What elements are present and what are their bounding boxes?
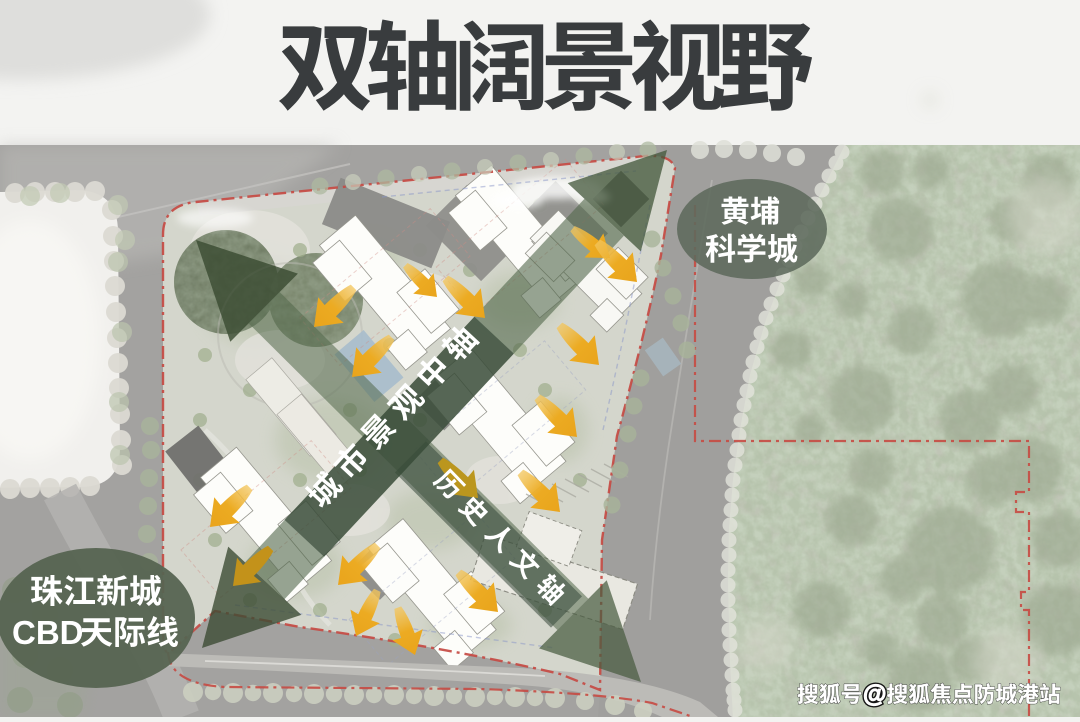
svg-text:@: @ <box>863 681 886 708</box>
svg-text:CBD: CBD <box>12 614 84 651</box>
